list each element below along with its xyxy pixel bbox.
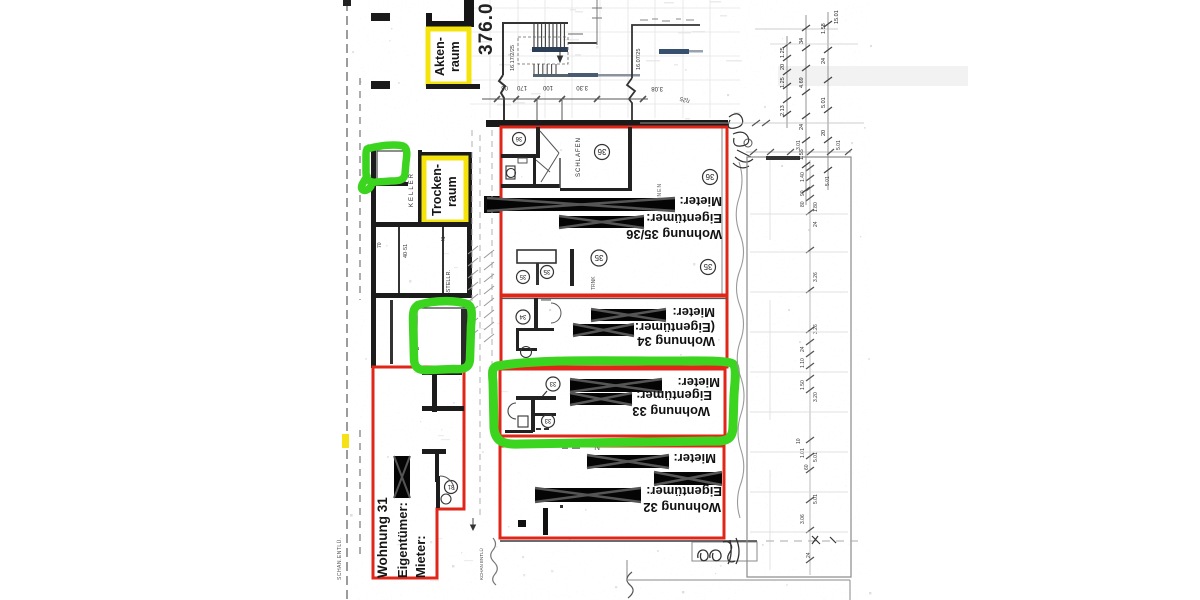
svg-text:Mieter:: Mieter: [413, 535, 428, 578]
svg-text:1.80: 1.80 [813, 202, 819, 212]
svg-text:1.01: 1.01 [800, 448, 806, 458]
svg-text:36: 36 [705, 172, 714, 181]
svg-text:1.25: 1.25 [780, 47, 786, 58]
svg-text:TRNK: TRNK [591, 276, 597, 290]
svg-text:Eigentümer:: Eigentümer: [646, 211, 722, 226]
svg-text:36: 36 [515, 135, 522, 141]
svg-text:Wohnung 34: Wohnung 34 [636, 334, 715, 349]
svg-text:Mieter:: Mieter: [673, 451, 716, 466]
svg-text:24: 24 [799, 124, 805, 130]
svg-text:3.08: 3.08 [651, 85, 663, 91]
svg-text:05: 05 [501, 84, 508, 90]
svg-text:Eigentümer:: Eigentümer: [395, 502, 410, 578]
svg-text:35: 35 [543, 268, 550, 274]
svg-text:33: 33 [544, 417, 551, 423]
svg-text:5.01: 5.01 [836, 140, 842, 150]
svg-text:Mieter:: Mieter: [677, 375, 720, 390]
svg-text:3.06: 3.06 [800, 514, 806, 524]
svg-text:Mieter:: Mieter: [679, 194, 722, 209]
svg-text:10: 10 [796, 438, 802, 444]
svg-text:40·51: 40·51 [403, 244, 409, 258]
svg-text:80: 80 [800, 201, 806, 207]
svg-text:24: 24 [821, 58, 827, 64]
svg-text:Trocken-: Trocken- [430, 164, 444, 216]
svg-text:20: 20 [821, 130, 827, 136]
svg-text:3.01: 3.01 [796, 140, 802, 150]
svg-text:100: 100 [542, 84, 553, 90]
svg-text:2.13: 2.13 [780, 105, 786, 116]
svg-text:Wohnung 33: Wohnung 33 [632, 404, 710, 419]
svg-text:Mieter:: Mieter: [672, 305, 715, 320]
svg-text:35: 35 [703, 262, 712, 271]
svg-text:BSTELLR.: BSTELLR. [446, 270, 452, 296]
svg-text:3.26: 3.26 [813, 324, 819, 334]
svg-text:Eigentümer:: Eigentümer: [636, 388, 712, 403]
svg-text:5.01: 5.01 [821, 97, 827, 108]
svg-text:34: 34 [799, 38, 805, 44]
svg-text:1.10: 1.10 [800, 358, 806, 368]
svg-text:KELLER: KELLER [409, 172, 415, 207]
svg-text:SCHAN.ENTLÜ.: SCHAN.ENTLÜ. [336, 537, 343, 580]
svg-text:Wohnung 31: Wohnung 31 [375, 497, 390, 578]
svg-text:SCHLAFEN: SCHLAFEN [576, 137, 582, 177]
svg-text:5.01: 5.01 [813, 452, 819, 462]
svg-text:60: 60 [804, 464, 810, 470]
svg-text:Wohnung 35/36: Wohnung 35/36 [626, 227, 722, 242]
svg-text:16.07/25: 16.07/25 [636, 49, 642, 70]
svg-text:41: 41 [441, 236, 447, 242]
svg-text:376.0: 376.0 [476, 2, 497, 55]
svg-text:(Eigentümer:: (Eigentümer: [635, 320, 715, 335]
svg-text:3.20: 3.20 [813, 392, 819, 402]
svg-text:Wohnung 32: Wohnung 32 [643, 500, 721, 515]
svg-text:Akten-: Akten- [433, 37, 447, 76]
svg-text:33: 33 [549, 380, 556, 386]
svg-text:24: 24 [800, 346, 806, 352]
svg-text:KCHAN ENTLÜ: KCHAN ENTLÜ [478, 548, 484, 580]
svg-text:24: 24 [813, 221, 819, 227]
svg-text:16.17/2/25: 16.17/2/25 [510, 45, 516, 71]
svg-text:35: 35 [594, 253, 603, 262]
svg-text:70: 70 [377, 242, 383, 248]
svg-text:1.25: 1.25 [780, 77, 786, 88]
svg-text:4.69: 4.69 [799, 77, 805, 88]
svg-text:15.01: 15.01 [834, 10, 840, 24]
svg-text:34: 34 [519, 313, 526, 319]
svg-text:3.30: 3.30 [576, 84, 588, 90]
svg-text:Eigentümer:: Eigentümer: [646, 484, 722, 499]
svg-text:36: 36 [597, 147, 606, 156]
svg-text:raum: raum [448, 41, 462, 72]
svg-text:3.26: 3.26 [813, 272, 819, 282]
svg-text:1.40: 1.40 [800, 172, 806, 182]
svg-text:raum: raum [445, 176, 459, 207]
svg-text:1.50: 1.50 [800, 380, 806, 390]
svg-text:35: 35 [519, 273, 526, 279]
svg-text:5.01: 5.01 [813, 494, 819, 504]
svg-text:1.58: 1.58 [821, 23, 827, 34]
svg-text:170: 170 [516, 84, 527, 90]
svg-text:24: 24 [806, 552, 812, 558]
svg-text:20: 20 [780, 64, 786, 70]
